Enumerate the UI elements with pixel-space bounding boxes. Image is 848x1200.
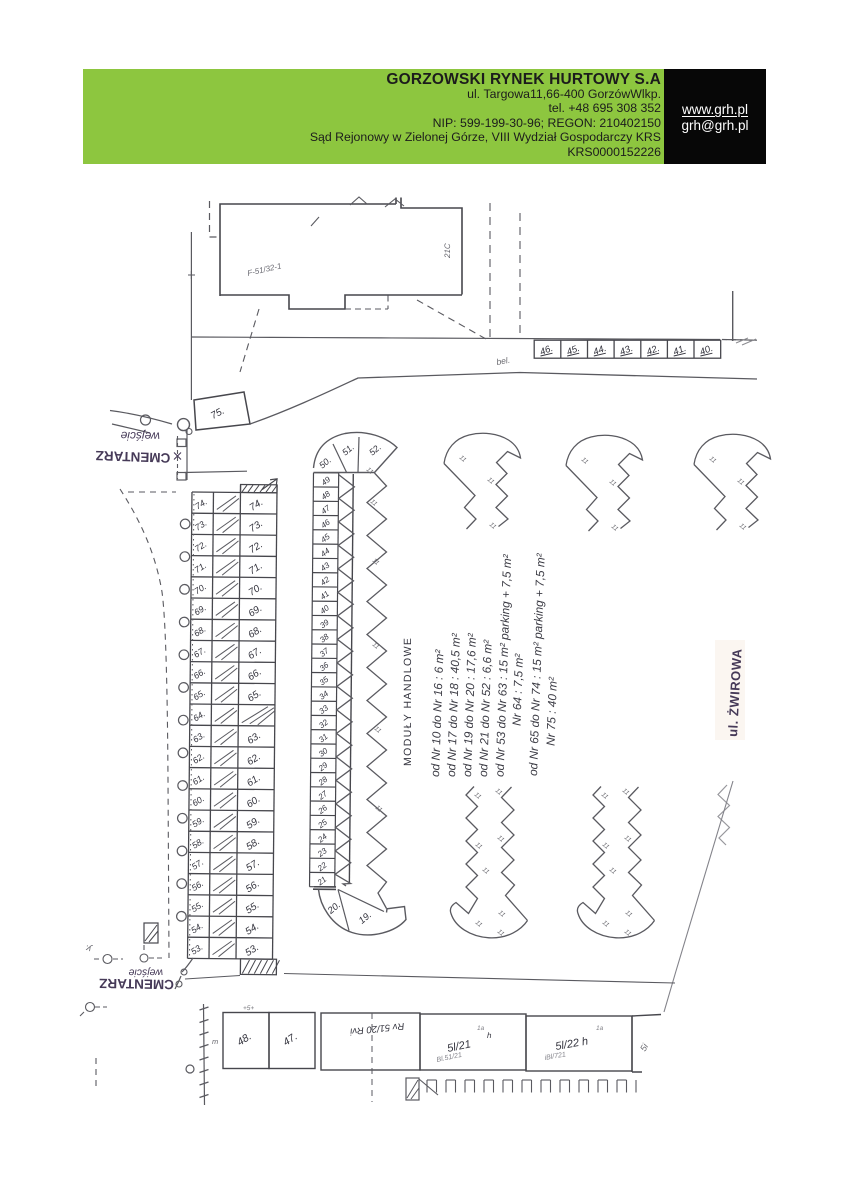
svg-text:11: 11 (608, 478, 618, 488)
svg-text:33: 33 (317, 703, 330, 716)
svg-text:19.: 19. (357, 910, 374, 927)
svg-text:47.: 47. (281, 1030, 300, 1048)
svg-text:74.: 74. (248, 497, 266, 514)
svg-text:58.: 58. (190, 836, 206, 851)
svg-text:42: 42 (319, 575, 332, 588)
svg-text:11: 11 (623, 834, 633, 844)
svg-text:70.: 70. (247, 582, 265, 599)
svg-text:46: 46 (319, 517, 332, 530)
svg-text:11: 11 (601, 919, 611, 929)
svg-text:m: m (212, 1037, 218, 1046)
svg-text:45: 45 (319, 532, 332, 545)
svg-text:21C: 21C (443, 243, 452, 259)
svg-text:25: 25 (316, 817, 330, 830)
svg-text:Nr 75 : 40 m²: Nr 75 : 40 m² (544, 676, 560, 746)
svg-text:41: 41 (319, 589, 332, 602)
svg-text:30: 30 (317, 746, 330, 759)
svg-text:68.: 68. (246, 624, 264, 641)
svg-text:bel.: bel. (496, 355, 511, 367)
svg-text:38: 38 (318, 632, 331, 645)
svg-text:11: 11 (497, 909, 507, 919)
svg-text:22: 22 (315, 860, 329, 873)
svg-text:11: 11 (458, 454, 468, 464)
svg-text:60.: 60. (190, 793, 206, 808)
svg-text:55.: 55. (244, 900, 262, 917)
svg-text:53.: 53. (189, 942, 205, 957)
svg-text:11: 11 (474, 919, 484, 929)
svg-text:65.: 65. (191, 687, 207, 702)
svg-text:54.: 54. (244, 921, 262, 938)
svg-text:69.: 69. (192, 602, 208, 617)
svg-text:72.: 72. (247, 539, 265, 556)
svg-text:34: 34 (318, 689, 331, 702)
svg-text:29: 29 (316, 760, 330, 773)
svg-text:62.: 62. (245, 751, 263, 768)
svg-text:62.: 62. (191, 751, 207, 766)
svg-text:43: 43 (319, 560, 332, 573)
svg-text:63.: 63. (191, 730, 207, 745)
svg-text:48: 48 (319, 489, 332, 502)
svg-text:64.: 64. (191, 708, 207, 723)
svg-text:48.: 48. (235, 1030, 254, 1048)
svg-text:61.: 61. (191, 772, 207, 787)
svg-text:11: 11 (494, 787, 504, 797)
svg-text:70.: 70. (192, 581, 208, 596)
svg-text:55.: 55. (189, 899, 205, 914)
svg-text:56.: 56. (190, 878, 206, 893)
svg-text:31: 31 (317, 732, 330, 745)
svg-text:11: 11 (600, 791, 610, 801)
svg-text:11: 11 (488, 521, 498, 531)
svg-text:72.: 72. (193, 539, 209, 554)
svg-text:60.: 60. (245, 794, 263, 811)
svg-text:11: 11 (580, 456, 590, 466)
svg-text:69.: 69. (247, 603, 265, 620)
svg-text:od Nr 21 do Nr 52 : 6,6 m²: od Nr 21 do Nr 52 : 6,6 m² (476, 639, 495, 778)
svg-text:47: 47 (319, 503, 332, 516)
svg-text:52.: 52. (367, 442, 383, 458)
svg-text:CMENTARZ: CMENTARZ (95, 448, 170, 466)
svg-text:63.: 63. (245, 730, 263, 747)
svg-text:50.: 50. (317, 455, 333, 471)
svg-text:11: 11 (708, 455, 718, 465)
svg-text:66.: 66. (192, 666, 208, 681)
svg-text:24: 24 (315, 832, 329, 845)
svg-text:49: 49 (320, 475, 333, 488)
svg-text:36: 36 (318, 660, 331, 673)
svg-text:53.: 53. (243, 942, 261, 959)
svg-text:wejście: wejście (120, 429, 160, 444)
svg-text:1a: 1a (596, 1025, 604, 1032)
svg-text:11: 11 (365, 466, 375, 476)
svg-text:51.: 51. (340, 442, 356, 458)
svg-text:73.: 73. (193, 518, 209, 533)
svg-text:21: 21 (315, 875, 328, 888)
svg-text:67.: 67. (246, 645, 264, 662)
svg-text:37: 37 (318, 646, 331, 659)
svg-text:5i: 5i (638, 1041, 651, 1053)
svg-text:56.: 56. (244, 879, 262, 896)
svg-text:11: 11 (610, 523, 620, 533)
svg-text:11: 11 (486, 476, 496, 486)
svg-text:54.: 54. (189, 920, 205, 935)
svg-text:5l/22 h: 5l/22 h (554, 1035, 589, 1053)
svg-text:11: 11 (608, 866, 618, 876)
svg-text:wejście: wejście (128, 967, 163, 979)
svg-text:11: 11 (481, 866, 491, 876)
svg-text:11: 11 (621, 787, 631, 797)
svg-text:68.: 68. (192, 624, 208, 639)
svg-text:27: 27 (316, 789, 330, 802)
svg-text:11: 11 (738, 522, 748, 532)
svg-text:61.: 61. (245, 773, 263, 790)
svg-text:y.: y. (83, 943, 93, 955)
svg-text:h: h (487, 1031, 492, 1040)
svg-text:40: 40 (318, 603, 331, 616)
svg-text:71.: 71. (247, 561, 265, 578)
svg-text:59.: 59. (245, 815, 263, 832)
svg-text:28: 28 (316, 774, 330, 787)
svg-text:Nr 64 : 7,5 m²: Nr 64 : 7,5 m² (510, 652, 527, 726)
svg-text:32: 32 (317, 717, 330, 730)
svg-text:F-51/32-1: F-51/32-1 (246, 261, 282, 278)
svg-text:11: 11 (496, 834, 506, 844)
svg-text:1a: 1a (477, 1025, 485, 1032)
svg-text:11: 11 (371, 641, 381, 651)
svg-text:57.: 57. (244, 857, 262, 874)
svg-text:Rv 51/20 Rvi: Rv 51/20 Rvi (349, 1020, 405, 1037)
svg-text:iBl/721: iBl/721 (544, 1050, 567, 1062)
svg-text:39: 39 (318, 617, 331, 630)
svg-text:35: 35 (318, 674, 331, 687)
svg-text:73.: 73. (247, 518, 265, 535)
svg-text:+5+: +5+ (243, 1005, 254, 1012)
svg-text:57.: 57. (190, 857, 206, 872)
svg-text:11: 11 (624, 909, 634, 919)
svg-text:26: 26 (316, 803, 330, 816)
svg-text:44: 44 (319, 546, 332, 559)
svg-text:74.: 74. (193, 496, 209, 511)
svg-text:11: 11 (473, 791, 483, 801)
svg-text:59.: 59. (190, 814, 206, 829)
svg-text:23: 23 (315, 846, 329, 859)
svg-text:MODUŁY HANDLOWE: MODUŁY HANDLOWE (402, 637, 414, 766)
svg-text:66.: 66. (246, 667, 264, 684)
svg-text:65.: 65. (246, 688, 264, 705)
svg-text:71.: 71. (193, 560, 209, 575)
svg-text:11: 11 (736, 477, 746, 487)
svg-text:58.: 58. (244, 836, 262, 853)
svg-text:67.: 67. (192, 645, 208, 660)
svg-text:75.: 75. (209, 406, 226, 422)
